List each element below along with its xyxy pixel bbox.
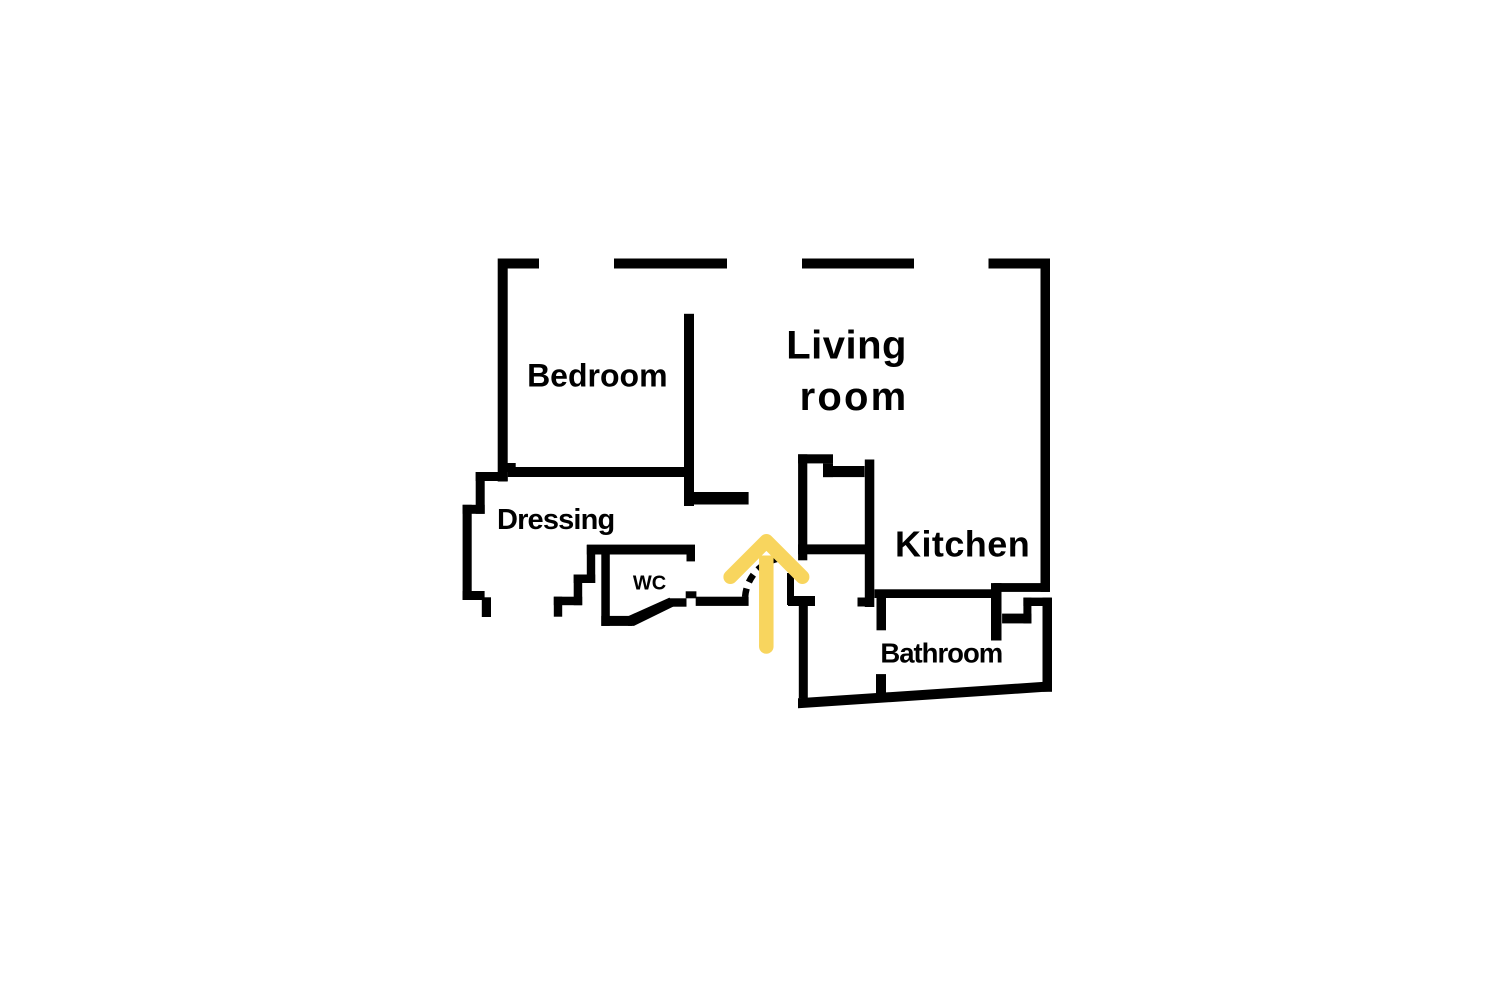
svg-text:Bathroom: Bathroom (880, 637, 1002, 668)
svg-text:room: room (800, 375, 909, 419)
svg-text:Living: Living (786, 324, 907, 368)
svg-text:Dressing: Dressing (497, 504, 614, 536)
svg-text:Bedroom: Bedroom (527, 358, 667, 394)
svg-text:Kitchen: Kitchen (895, 524, 1030, 565)
svg-text:WC: WC (633, 572, 666, 594)
